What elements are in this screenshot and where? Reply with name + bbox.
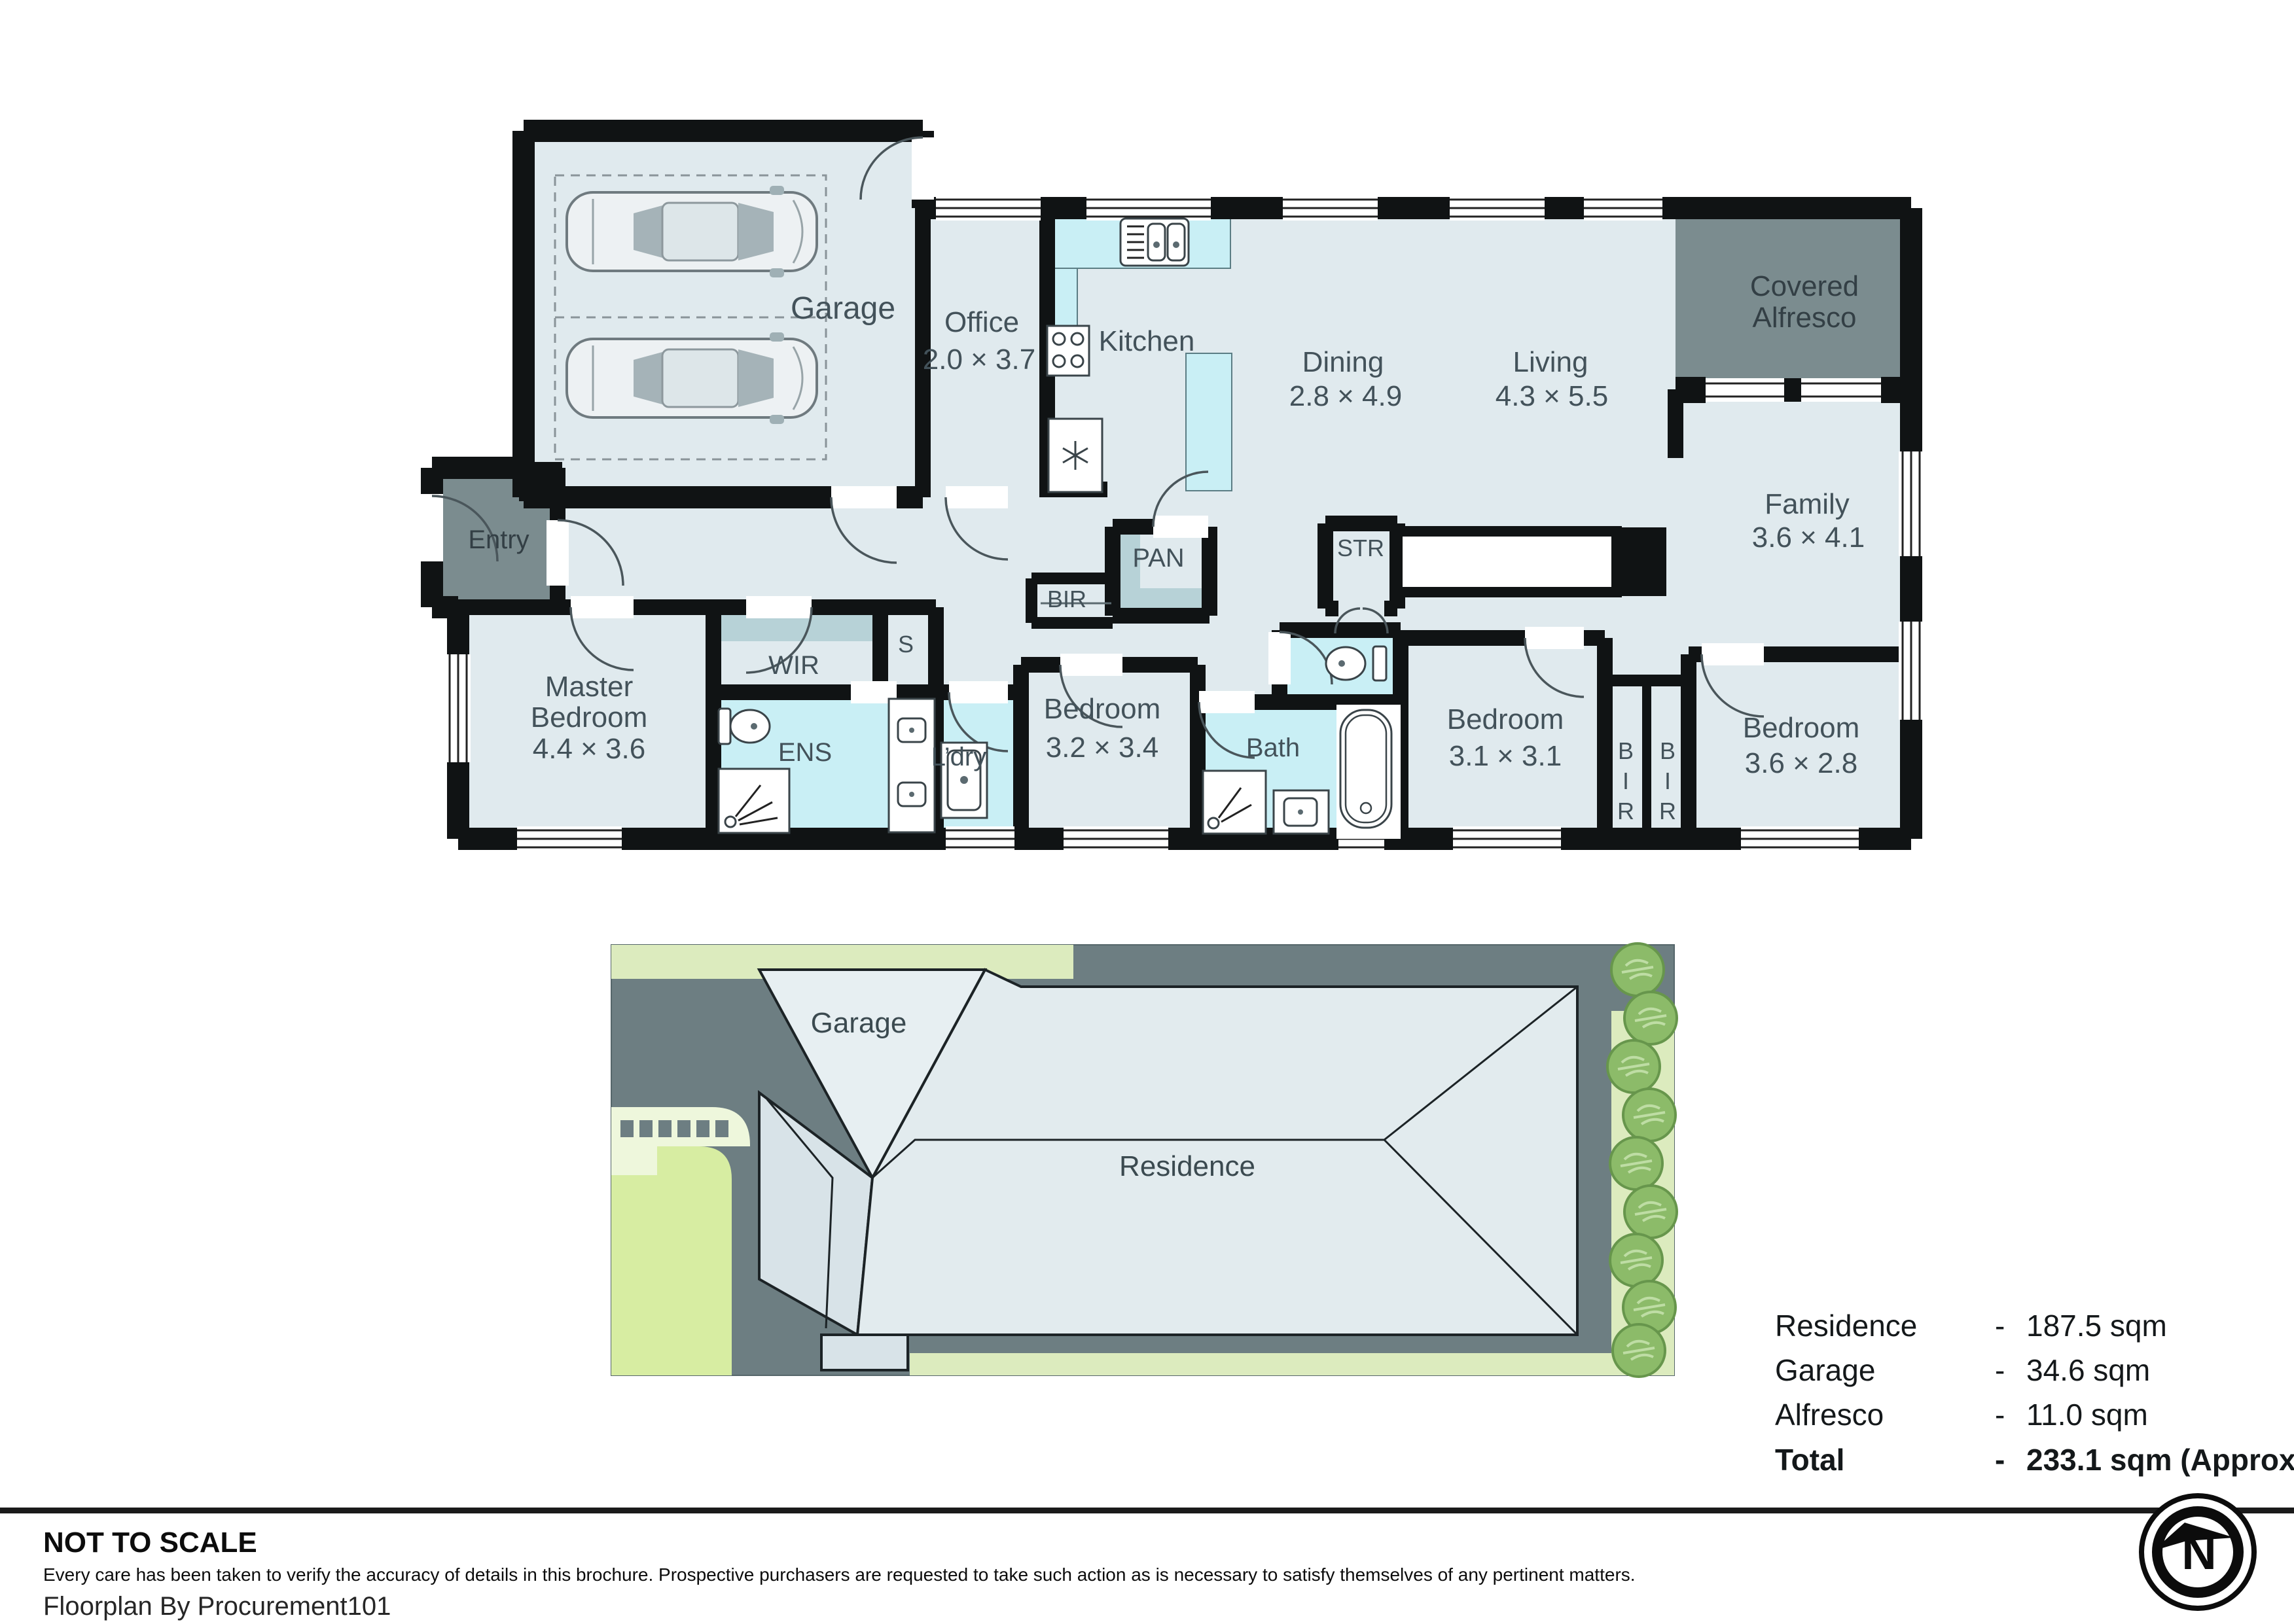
disclaimer: Every care has been taken to verify the …	[43, 1564, 1636, 1585]
label-bir-hall: BIR	[1047, 586, 1086, 612]
svg-text:Alfresco: Alfresco	[1775, 1398, 1884, 1432]
site-label-residence: Residence	[1119, 1150, 1255, 1182]
wall-niche	[1397, 531, 1617, 592]
label-bed4: Bedroom	[1743, 712, 1860, 744]
svg-text:R: R	[1659, 798, 1676, 824]
label-ldry: L’dry	[931, 743, 987, 771]
alfresco-sliding-door	[1676, 377, 1911, 403]
fridge-icon	[1048, 419, 1102, 492]
footer: NOT TO SCALE Every care has been taken t…	[0, 1496, 2294, 1621]
summary-row-residence: Residence - 187.5 sqm	[1775, 1309, 2167, 1343]
label-wir: WIR	[768, 651, 819, 680]
vanity-icon	[889, 699, 935, 832]
brochure-page: { "palette": { "floor": "#e0eaee", "wet"…	[0, 0, 2294, 1624]
label-master-dims: 4.4 × 3.6	[533, 733, 645, 765]
scale-note: NOT TO SCALE	[43, 1527, 257, 1559]
sink-icon	[1120, 219, 1189, 266]
label-alfresco-2: Alfresco	[1753, 302, 1857, 334]
floorplan-brochure: Garage Office 2.0 × 3.7 Kitchen Dining 2…	[0, 0, 2294, 1624]
label-office-dims: 2.0 × 3.7	[923, 344, 1035, 376]
toilet-icon	[1326, 646, 1386, 680]
label-ens: ENS	[778, 738, 832, 767]
vanity-icon	[1274, 790, 1329, 834]
label-s: S	[898, 631, 914, 658]
car-1	[567, 186, 817, 277]
compass-icon: N	[2142, 1496, 2254, 1608]
label-dining: Dining	[1302, 346, 1384, 378]
svg-text:-: -	[1995, 1309, 2005, 1343]
car-2	[567, 332, 817, 424]
label-family-dims: 3.6 × 4.1	[1752, 521, 1865, 554]
label-bed3: Bedroom	[1447, 703, 1564, 735]
svg-text:R: R	[1617, 798, 1634, 824]
compass-n: N	[2181, 1525, 2216, 1580]
label-bed2-dims: 3.2 × 3.4	[1046, 732, 1158, 764]
label-office: Office	[944, 306, 1019, 338]
label-garage: Garage	[791, 291, 895, 326]
svg-text:34.6 sqm: 34.6 sqm	[2026, 1353, 2150, 1387]
bathtub-icon	[1340, 710, 1391, 828]
summary-row-garage: Garage - 34.6 sqm	[1775, 1353, 2150, 1387]
svg-text:-: -	[1995, 1443, 2005, 1477]
label-bed3-dims: 3.1 × 3.1	[1449, 740, 1562, 772]
stove-icon	[1047, 326, 1089, 376]
shower-icon	[719, 769, 789, 833]
verge-bottom	[910, 1353, 1674, 1375]
svg-text:B: B	[1660, 737, 1676, 764]
label-living: Living	[1513, 346, 1588, 378]
divider-line	[0, 1508, 2294, 1513]
label-bed4-dims: 3.6 × 2.8	[1745, 747, 1857, 779]
label-str: STR	[1337, 535, 1384, 561]
label-kitchen: Kitchen	[1099, 325, 1195, 357]
svg-text:233.1 sqm (Approx): 233.1 sqm (Approx)	[2026, 1443, 2294, 1477]
label-master-1: Master	[545, 671, 633, 703]
kitchen-island	[1186, 353, 1232, 491]
label-dining-dims: 2.8 × 4.9	[1289, 380, 1402, 412]
toilet-icon	[719, 709, 770, 744]
svg-text:187.5 sqm: 187.5 sqm	[2026, 1309, 2167, 1343]
niche-end-wall	[1617, 527, 1666, 596]
shower-icon	[1203, 771, 1266, 834]
label-master-2: Bedroom	[531, 701, 648, 733]
svg-text:-: -	[1995, 1398, 2005, 1432]
label-pan: PAN	[1132, 544, 1184, 573]
front-yard	[611, 1146, 732, 1375]
svg-text:B: B	[1618, 737, 1634, 764]
site-label-garage: Garage	[811, 1007, 907, 1039]
roof-porch-step	[821, 1335, 908, 1370]
svg-text:I: I	[1622, 768, 1629, 794]
floor-plan: Garage Office 2.0 × 3.7 Kitchen Dining 2…	[421, 131, 1924, 851]
label-alfresco-1: Covered	[1750, 270, 1859, 302]
svg-text:Garage: Garage	[1775, 1353, 1875, 1387]
svg-text:Total: Total	[1775, 1443, 1844, 1477]
hall-floor	[558, 497, 923, 607]
label-bath: Bath	[1246, 733, 1300, 762]
label-family: Family	[1765, 488, 1850, 520]
svg-text:I: I	[1664, 768, 1671, 794]
svg-text:11.0 sqm: 11.0 sqm	[2026, 1398, 2148, 1432]
label-bed2: Bedroom	[1044, 693, 1161, 725]
site-plan: Garage Residence	[611, 944, 1677, 1377]
svg-text:-: -	[1995, 1353, 2005, 1387]
summary-row-total: Total - 233.1 sqm (Approx)	[1775, 1443, 2294, 1477]
credit: Floorplan By Procurement101	[43, 1592, 391, 1621]
summary-row-alfresco: Alfresco - 11.0 sqm	[1775, 1398, 2148, 1432]
svg-text:Residence: Residence	[1775, 1309, 1917, 1343]
label-living-dims: 4.3 × 5.5	[1496, 380, 1608, 412]
label-entry: Entry	[468, 525, 529, 554]
area-summary: Residence - 187.5 sqm Garage - 34.6 sqm …	[1775, 1309, 2294, 1477]
